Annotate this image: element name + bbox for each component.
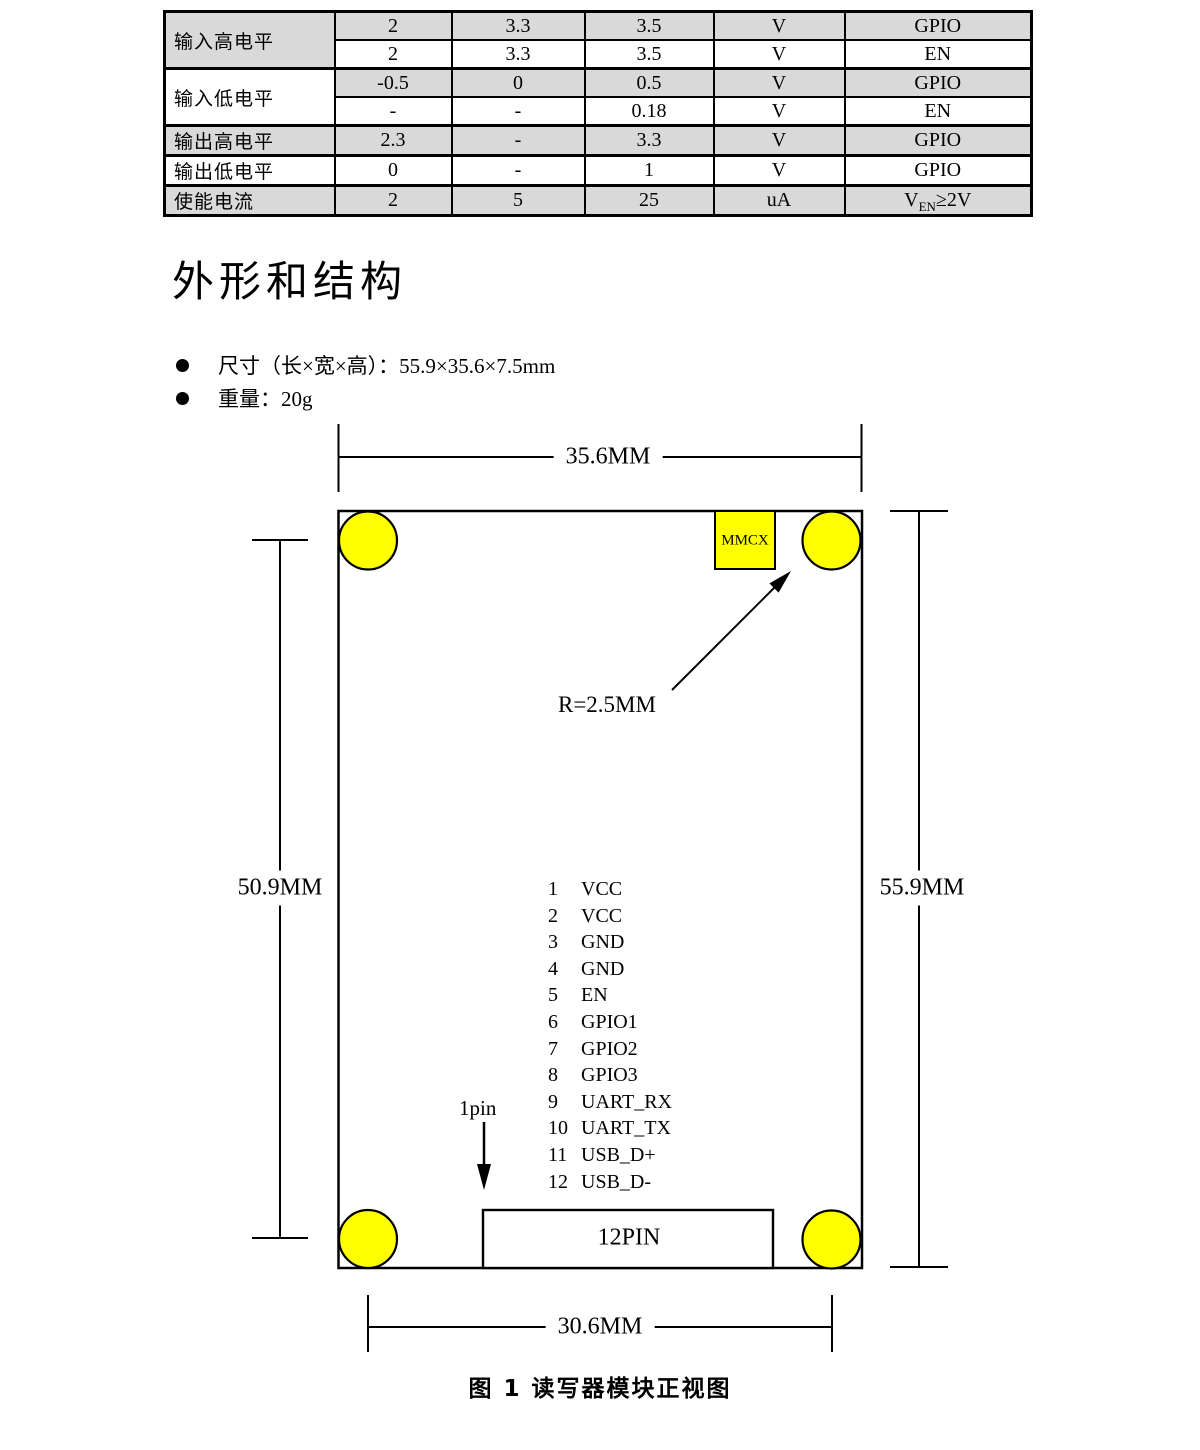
datasheet-page: 输入高电平 2 3.3 3.5 V GPIO 2 3.3 3.5 V EN 输入… — [0, 0, 1200, 1450]
table-cell: EN — [845, 40, 1032, 69]
table-cell: 2 — [335, 40, 452, 69]
mounting-hole-bottom-right — [803, 1211, 861, 1269]
table-cell: - — [452, 126, 585, 156]
table-cell: 2.3 — [335, 126, 452, 156]
table-cell: 3.3 — [452, 40, 585, 69]
radius-label: R=2.5MM — [558, 692, 656, 718]
pin-number: 9 — [548, 1089, 581, 1116]
bullet-weight: 重量：20g — [176, 383, 313, 413]
table-cell: EN — [845, 97, 1032, 126]
pin-row: 5EN — [548, 982, 672, 1009]
pin-name: GND — [581, 956, 624, 983]
pin-number: 8 — [548, 1062, 581, 1089]
table-row: 输入低电平 -0.5 0 0.5 V GPIO — [165, 69, 1032, 98]
table-cell: 0 — [452, 69, 585, 98]
table-cell: V — [714, 126, 845, 156]
pin-number: 12 — [548, 1169, 581, 1196]
table-row-label: 使能电流 — [165, 186, 335, 216]
pin-name: GND — [581, 929, 624, 956]
pin-name: UART_TX — [581, 1115, 671, 1142]
table-cell: uA — [714, 186, 845, 216]
pin-number: 11 — [548, 1142, 581, 1169]
bullet-text: 尺寸（长×宽×高）：55.9×35.6×7.5mm — [218, 350, 555, 380]
pin-number: 3 — [548, 929, 581, 956]
condition-subscript: EN — [919, 199, 936, 214]
mounting-hole-top-right — [803, 512, 861, 570]
pin-name: USB_D+ — [581, 1142, 656, 1169]
table-cell-condition: VEN≥2V — [845, 186, 1032, 216]
pin-name: GPIO2 — [581, 1036, 638, 1063]
pin-row: 11USB_D+ — [548, 1142, 672, 1169]
table-cell: V — [714, 97, 845, 126]
mounting-hole-top-left — [339, 512, 397, 570]
table-cell: V — [714, 69, 845, 98]
section-heading: 外形和结构 — [172, 248, 407, 309]
table-cell: - — [335, 97, 452, 126]
pin-number: 4 — [548, 956, 581, 983]
table-cell: 3.3 — [585, 126, 714, 156]
table-row: 输出高电平 2.3 - 3.3 V GPIO — [165, 126, 1032, 156]
pin-row: 10UART_TX — [548, 1115, 672, 1142]
table-row: 输出低电平 0 - 1 V GPIO — [165, 156, 1032, 186]
pin-row: 6GPIO1 — [548, 1009, 672, 1036]
pin-number: 10 — [548, 1115, 581, 1142]
table-cell: 25 — [585, 186, 714, 216]
mmcx-label: MMCX — [721, 533, 769, 550]
table-cell: 2 — [335, 12, 452, 41]
table-row-label: 输入低电平 — [165, 69, 335, 126]
table-cell: 0 — [335, 156, 452, 186]
table-cell: GPIO — [845, 126, 1032, 156]
table-cell: 5 — [452, 186, 585, 216]
pin-row: 3GND — [548, 929, 672, 956]
table-cell: -0.5 — [335, 69, 452, 98]
table-cell: 3.3 — [452, 12, 585, 41]
table-cell: - — [452, 156, 585, 186]
table-cell: V — [714, 12, 845, 41]
pin-row: 9UART_RX — [548, 1089, 672, 1116]
dim-label-height: 55.9MM — [874, 871, 971, 906]
pin-number: 5 — [548, 982, 581, 1009]
pin-name: VCC — [581, 903, 622, 930]
dim-label-hole-spacing: 50.9MM — [232, 871, 329, 906]
pin-number: 2 — [548, 903, 581, 930]
figure-caption: 图 1 读写器模块正视图 — [468, 1369, 731, 1403]
table-row-label: 输出低电平 — [165, 156, 335, 186]
pin-name: VCC — [581, 876, 622, 903]
table-cell: V — [714, 40, 845, 69]
table-cell: GPIO — [845, 69, 1032, 98]
table-row: 使能电流 2 5 25 uA VEN≥2V — [165, 186, 1032, 216]
table-cell: 0.5 — [585, 69, 714, 98]
pin1-label: 1pin — [459, 1096, 496, 1121]
table-row-label: 输出高电平 — [165, 126, 335, 156]
pin-name: EN — [581, 982, 608, 1009]
pin-number: 6 — [548, 1009, 581, 1036]
pin-row: 4GND — [548, 956, 672, 983]
spec-table: 输入高电平 2 3.3 3.5 V GPIO 2 3.3 3.5 V EN 输入… — [163, 10, 1033, 217]
pin-name: USB_D- — [581, 1169, 651, 1196]
table-cell: 2 — [335, 186, 452, 216]
table-cell: GPIO — [845, 12, 1032, 41]
pin-list: 1VCC 2VCC 3GND 4GND 5EN 6GPIO1 7GPIO2 8G… — [548, 876, 672, 1195]
connector-label: 12PIN — [598, 1225, 661, 1252]
table-cell: 0.18 — [585, 97, 714, 126]
pin-row: 7GPIO2 — [548, 1036, 672, 1063]
table-cell: V — [714, 156, 845, 186]
bullet-dimensions: 尺寸（长×宽×高）：55.9×35.6×7.5mm — [176, 350, 555, 380]
pin-number: 1 — [548, 876, 581, 903]
dim-label-width: 35.6MM — [554, 444, 663, 471]
condition-value: ≥2V — [936, 189, 971, 211]
pin-row: 2VCC — [548, 903, 672, 930]
pin-row: 12USB_D- — [548, 1169, 672, 1196]
pin-name: UART_RX — [581, 1089, 672, 1116]
pin-name: GPIO1 — [581, 1009, 638, 1036]
bullet-icon — [176, 392, 189, 405]
pin-row: 8GPIO3 — [548, 1062, 672, 1089]
table-cell: - — [452, 97, 585, 126]
table-cell: GPIO — [845, 156, 1032, 186]
dim-label-connector-width: 30.6MM — [546, 1314, 655, 1341]
bullet-text: 重量：20g — [218, 383, 313, 413]
table-row: 输入高电平 2 3.3 3.5 V GPIO — [165, 12, 1032, 41]
mounting-hole-bottom-left — [339, 1210, 397, 1268]
pin-row: 1VCC — [548, 876, 672, 903]
table-cell: 3.5 — [585, 40, 714, 69]
table-row-label: 输入高电平 — [165, 12, 335, 69]
pin-name: GPIO3 — [581, 1062, 638, 1089]
table-cell: 1 — [585, 156, 714, 186]
bullet-icon — [176, 359, 189, 372]
table-cell: 3.5 — [585, 12, 714, 41]
pin-number: 7 — [548, 1036, 581, 1063]
condition-symbol: V — [904, 189, 918, 211]
